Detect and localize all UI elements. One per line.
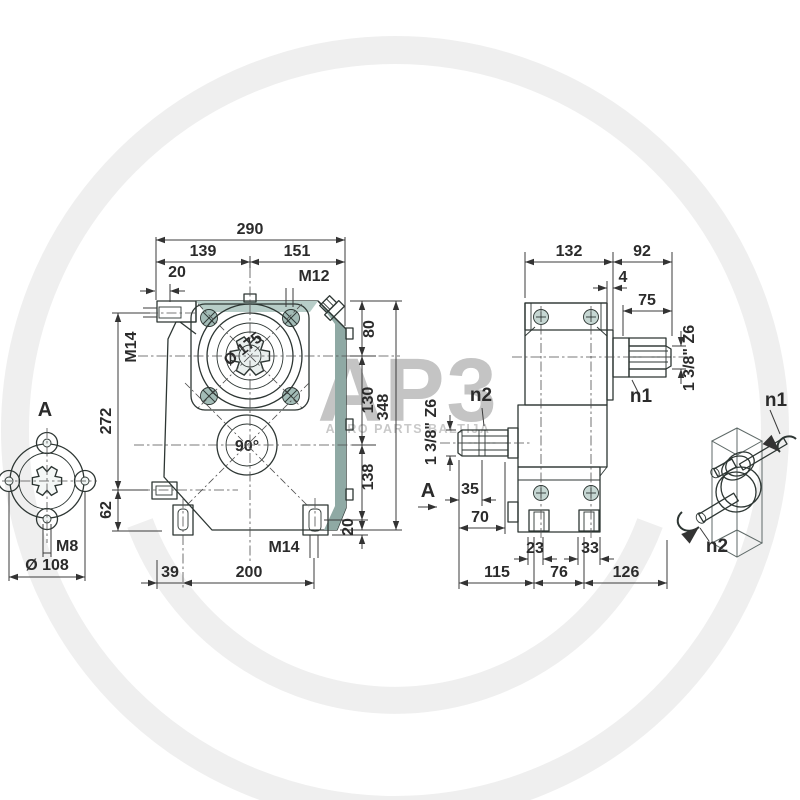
view-a-title: A — [38, 399, 52, 421]
side-lower-boss — [508, 502, 518, 522]
dim-4: 4 — [619, 269, 628, 286]
side-bottom-bolt-holes — [534, 486, 599, 501]
watermark: AP3 AGRO PARTS BALTIJA — [15, 50, 775, 800]
schematic-shaft-n2 — [699, 493, 739, 522]
flange-section — [157, 301, 196, 322]
dim-23: 23 — [526, 540, 544, 557]
side-feet — [529, 510, 599, 531]
dim-dia-108: Ø 108 — [25, 557, 69, 574]
gearbox-drawing: AP3 AGRO PARTS BALTIJA — [0, 0, 800, 800]
schematic-label-n1: n1 — [765, 390, 788, 411]
thread-m14-left: M14 — [123, 331, 140, 362]
watermark-subtitle: AGRO PARTS BALTIJA — [326, 422, 491, 436]
oil-plug-tab — [346, 328, 353, 339]
dim-92: 92 — [633, 243, 651, 260]
dim-75: 75 — [638, 292, 656, 309]
label-n2: n2 — [470, 385, 492, 406]
oil-plug-tab — [346, 489, 353, 500]
dim-132: 132 — [556, 243, 583, 260]
dim-20-right: 20 — [340, 518, 357, 536]
side-housing-mid — [518, 405, 607, 467]
rotation-arrow-n2 — [678, 512, 699, 531]
thread-m12: M12 — [298, 268, 329, 285]
dim-39: 39 — [161, 564, 179, 581]
dim-33: 33 — [581, 540, 599, 557]
dim-115: 115 — [484, 564, 510, 581]
dim-290: 290 — [237, 221, 264, 238]
dim-139: 139 — [190, 243, 217, 260]
shaft-spec-n2: 1 3/8" Z6 — [423, 399, 440, 465]
dim-151: 151 — [284, 243, 311, 260]
flange-hole — [159, 307, 181, 318]
dim-62: 62 — [98, 501, 115, 519]
schematic-label-n2: n2 — [706, 536, 728, 557]
shaft-spec-n1: 1 3/8" Z6 — [681, 325, 698, 391]
dim-20-top: 20 — [168, 264, 186, 281]
view-direction-label: A — [421, 480, 435, 502]
thread-m8: M8 — [56, 538, 78, 555]
dim-138: 138 — [360, 464, 377, 491]
watermark-inner-arc — [140, 523, 650, 700]
label-n1: n1 — [630, 386, 653, 407]
dim-200: 200 — [236, 564, 263, 581]
thread-m14-bottom: M14 — [268, 539, 299, 556]
technical-drawing-page: AP3 AGRO PARTS BALTIJA — [0, 0, 800, 800]
dim-76: 76 — [550, 564, 568, 581]
dim-80: 80 — [361, 320, 378, 338]
dim-70: 70 — [471, 509, 489, 526]
shaft-n1 — [613, 338, 671, 377]
dim-272: 272 — [98, 408, 115, 435]
dim-35: 35 — [461, 481, 479, 498]
dim-348: 348 — [375, 394, 392, 421]
side-top-bolt-holes — [534, 310, 599, 325]
gear-angle-label: 90° — [235, 438, 259, 455]
dim-126: 126 — [613, 564, 640, 581]
side-step — [607, 330, 613, 400]
